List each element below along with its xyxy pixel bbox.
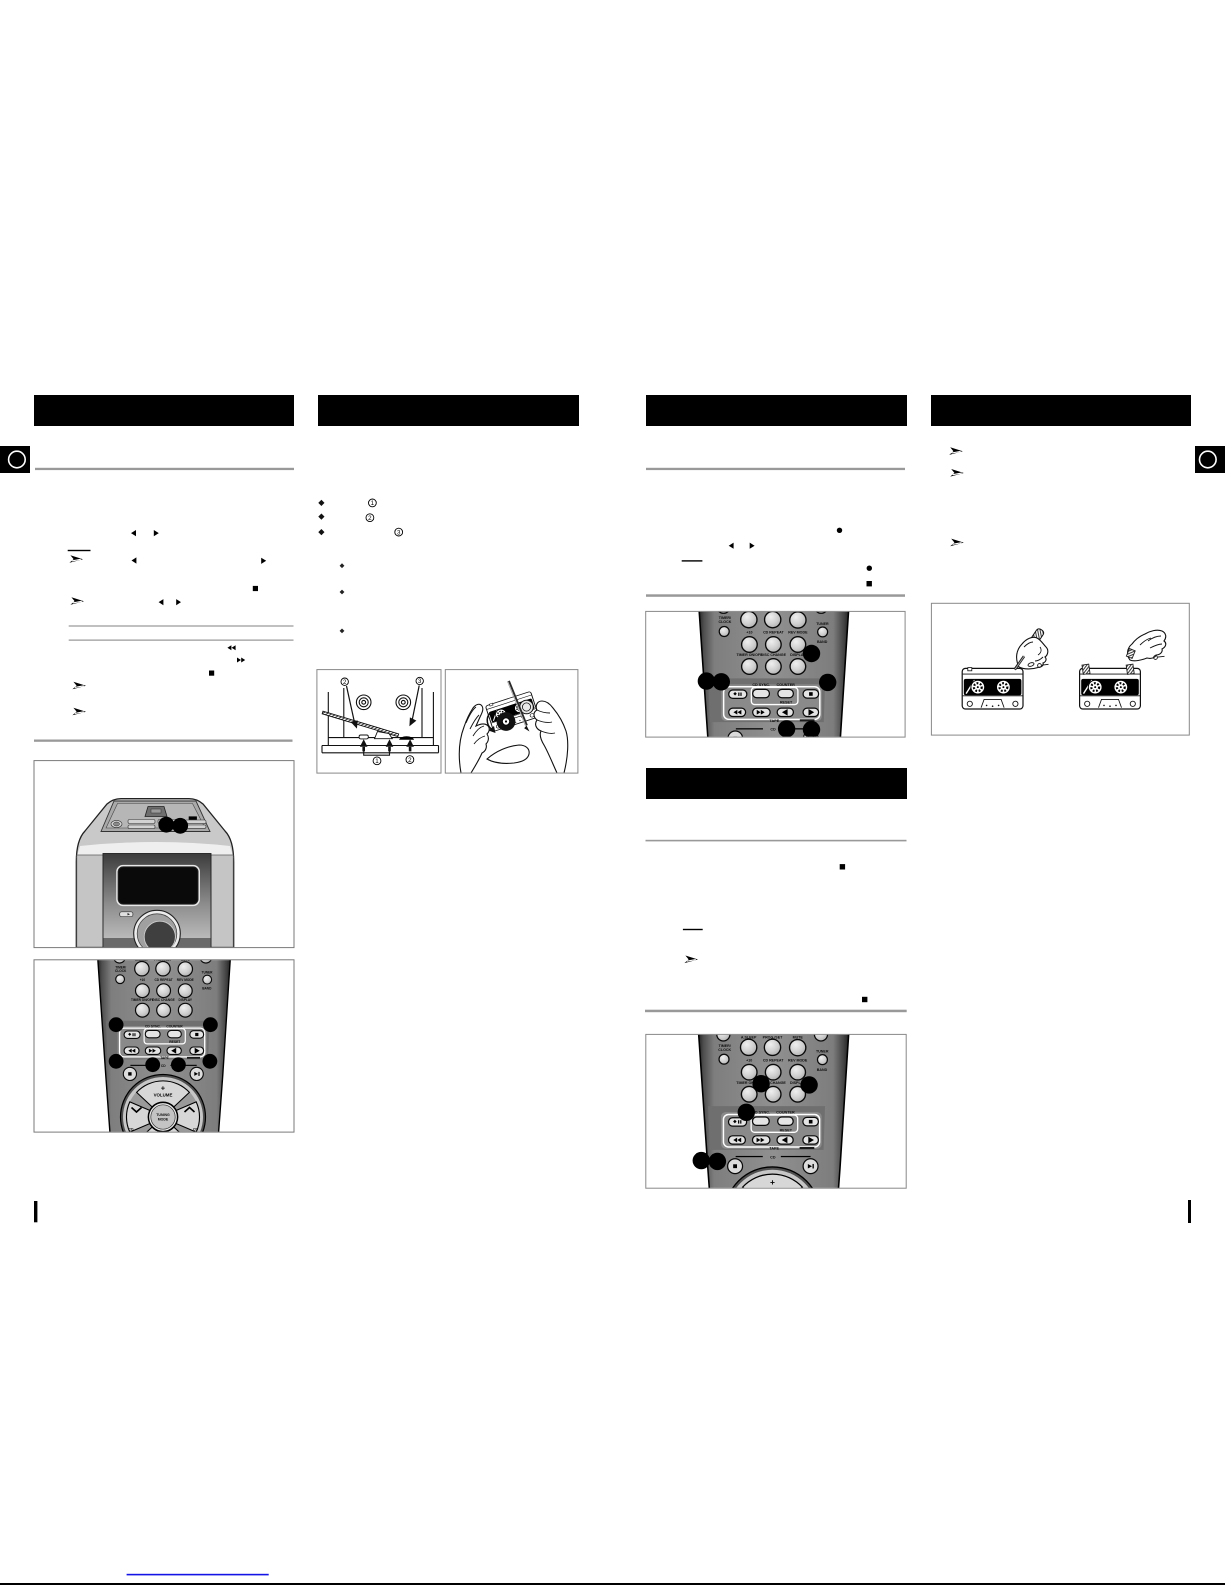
svg-text:2: 2 (368, 515, 372, 522)
svg-text:3: 3 (397, 529, 401, 536)
svg-text:1: 1 (375, 758, 379, 765)
svg-text:2: 2 (408, 757, 412, 764)
svg-text:1: 1 (371, 500, 375, 507)
